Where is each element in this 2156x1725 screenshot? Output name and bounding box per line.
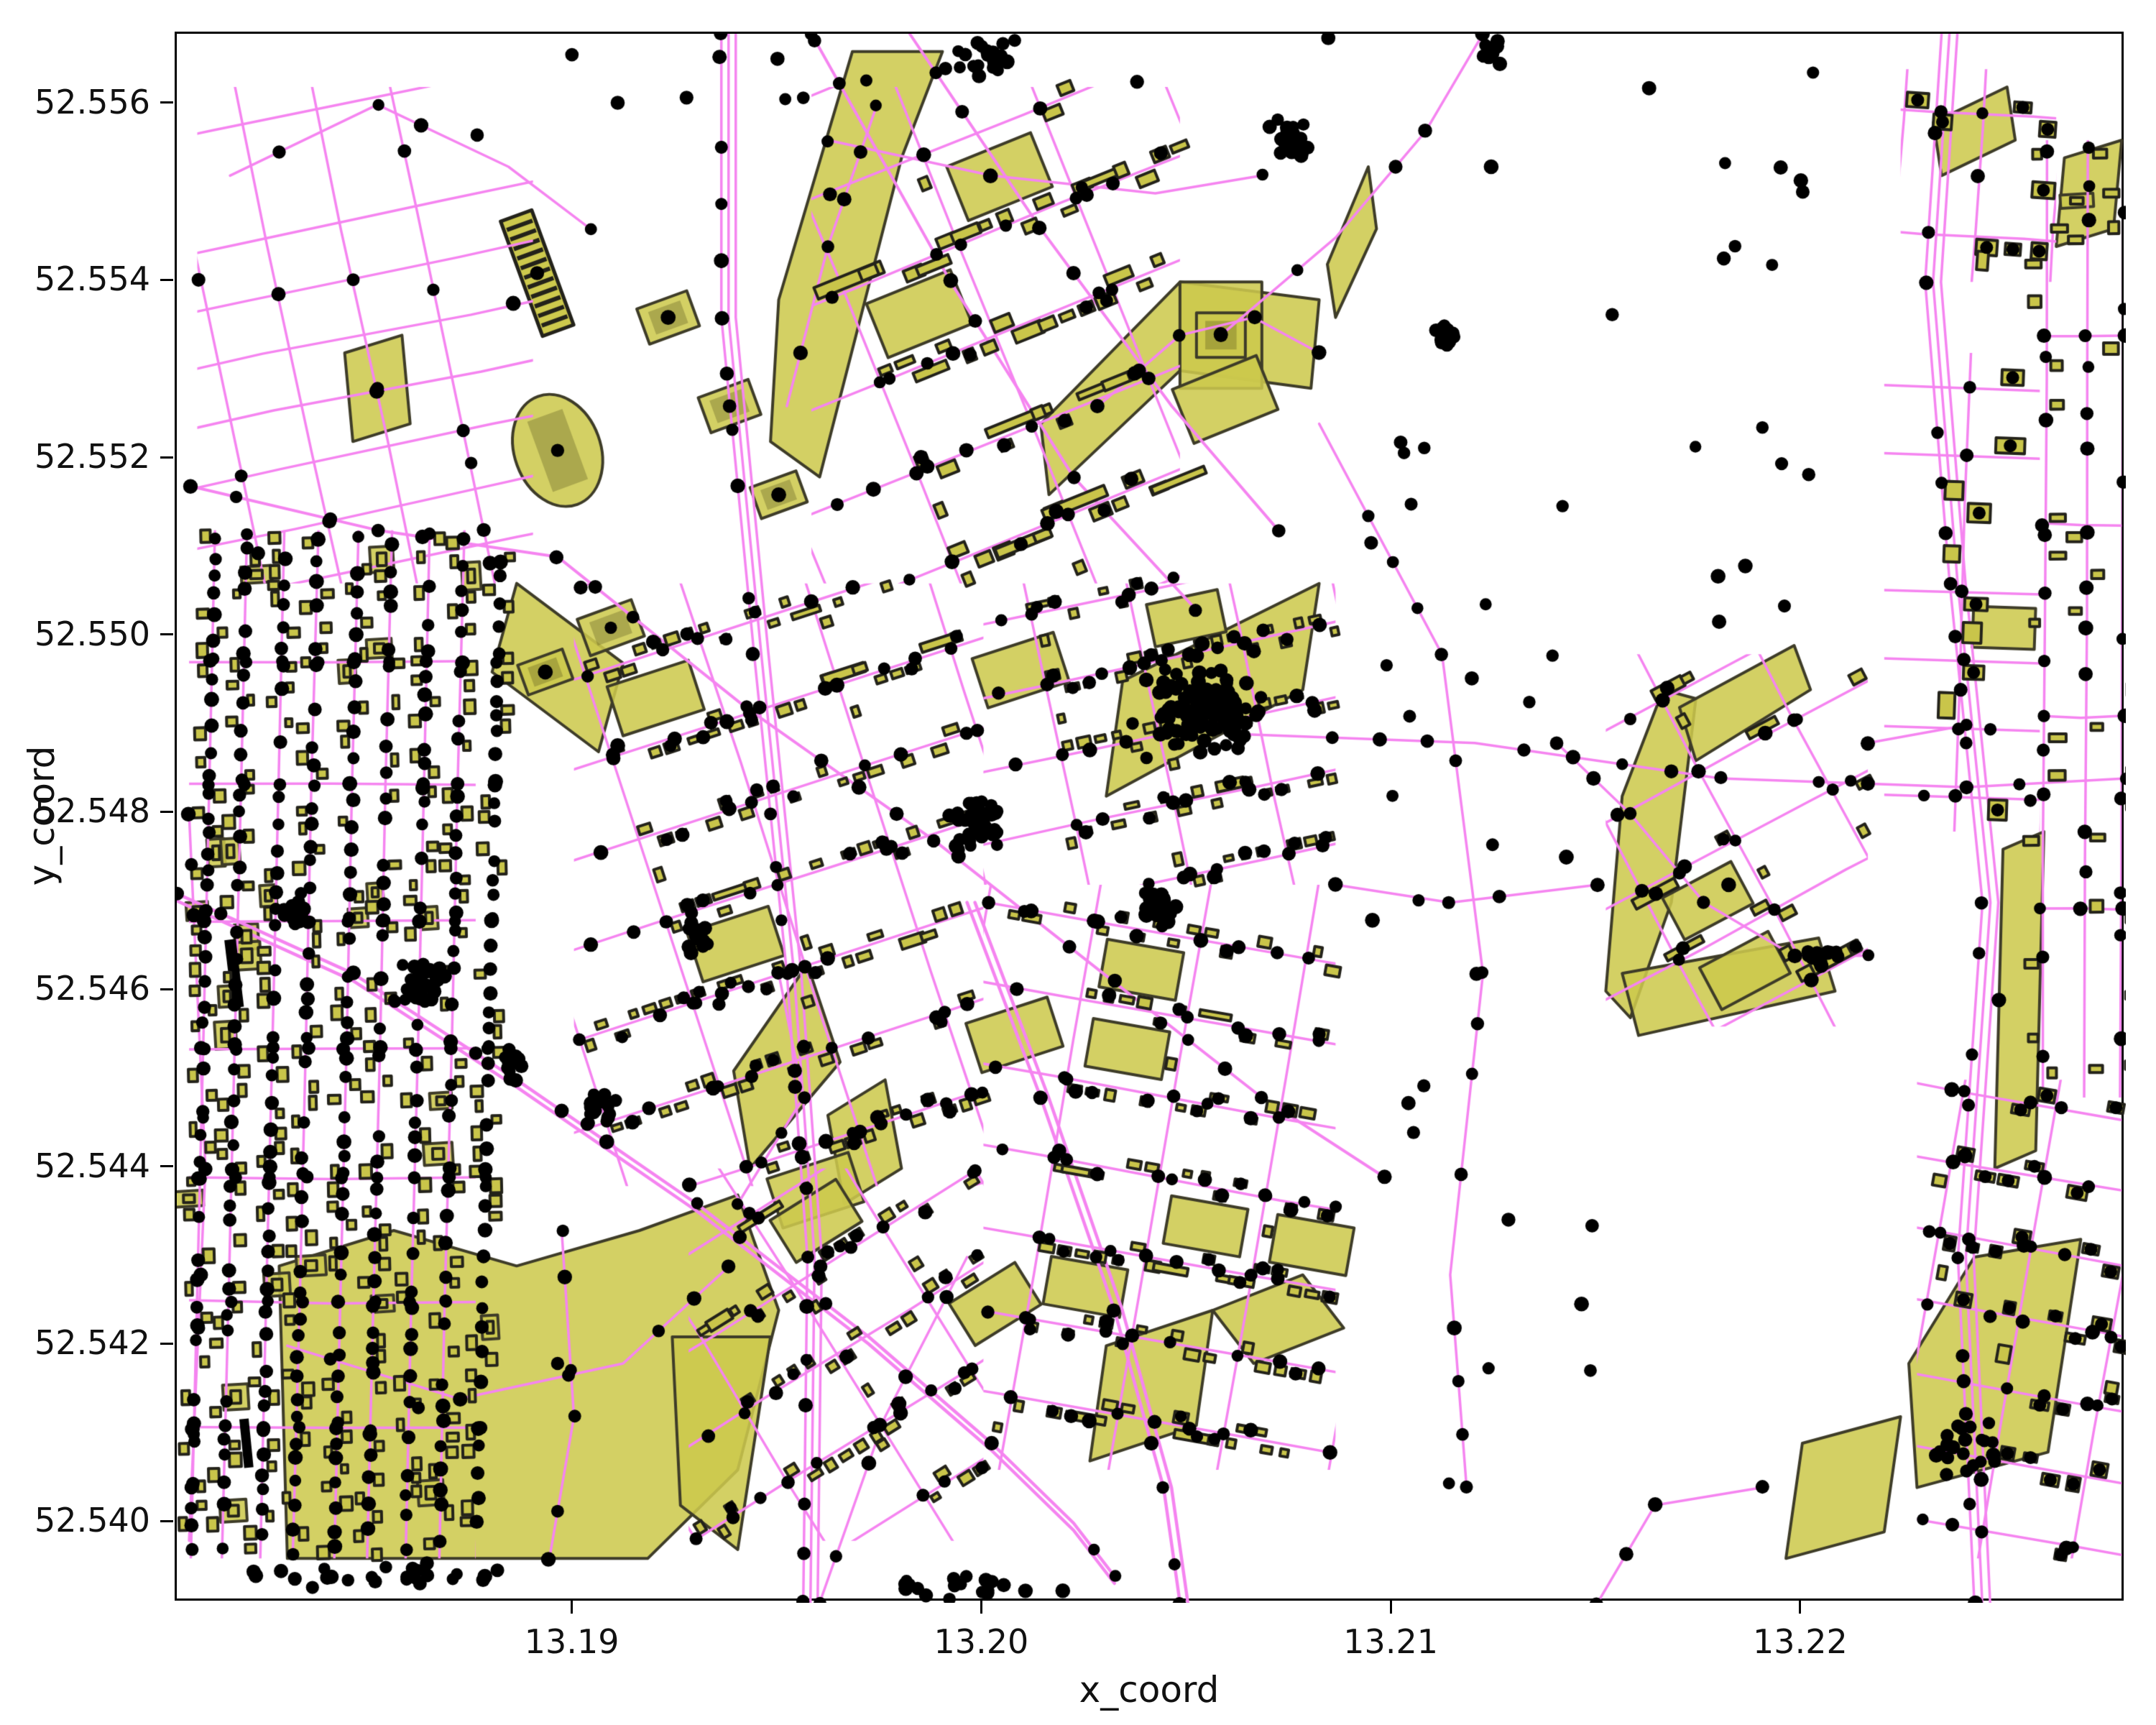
x-tick-label: 13.19 <box>525 1622 619 1661</box>
y-tick-mark <box>160 811 173 813</box>
y-tick-label: 52.542 <box>0 1323 150 1362</box>
y-tick-label: 52.556 <box>0 83 150 121</box>
y-tick-mark <box>160 633 173 635</box>
y-tick-label: 52.554 <box>0 259 150 298</box>
y-tick-label: 52.544 <box>0 1146 150 1185</box>
x-tick-mark <box>1799 1601 1801 1614</box>
y-axis-label: y_coord <box>21 746 63 886</box>
y-tick-mark <box>160 988 173 990</box>
x-tick-label: 13.21 <box>1343 1622 1438 1661</box>
x-tick-mark <box>1390 1601 1392 1614</box>
y-tick-mark <box>160 1520 173 1522</box>
x-tick-mark <box>571 1601 573 1614</box>
y-tick-mark <box>160 1165 173 1167</box>
x-axis-label: x_coord <box>1079 1669 1220 1711</box>
y-tick-label: 52.550 <box>0 615 150 653</box>
map-canvas <box>177 34 2126 1603</box>
y-tick-mark <box>160 101 173 103</box>
x-tick-mark <box>980 1601 982 1614</box>
figure: 13.1913.2013.2113.2252.55652.55452.55252… <box>0 0 2156 1725</box>
x-tick-label: 13.22 <box>1753 1622 1848 1661</box>
y-tick-label: 52.540 <box>0 1501 150 1540</box>
y-tick-mark <box>160 279 173 281</box>
y-tick-label: 52.546 <box>0 969 150 1008</box>
y-tick-label: 52.552 <box>0 437 150 476</box>
plot-area <box>175 32 2124 1601</box>
x-tick-label: 13.20 <box>934 1622 1029 1661</box>
y-tick-mark <box>160 456 173 459</box>
y-tick-mark <box>160 1343 173 1345</box>
